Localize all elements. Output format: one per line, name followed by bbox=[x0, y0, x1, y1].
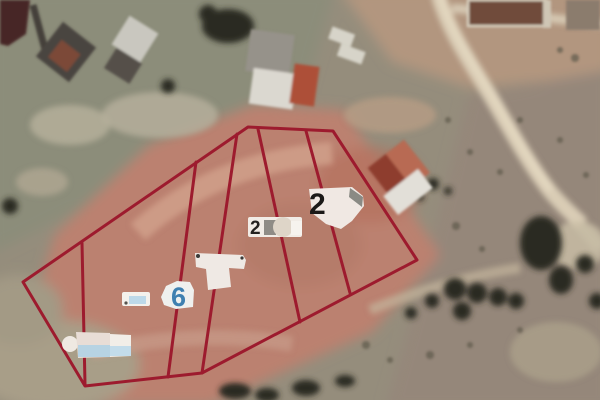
building-top-right-gray bbox=[566, 0, 600, 30]
light-clearing-bottom-right bbox=[510, 322, 600, 382]
rocky-light-patch2 bbox=[16, 168, 68, 196]
rocky-light-band bbox=[102, 92, 218, 138]
light-dirt-top-of-parcels bbox=[344, 97, 436, 133]
satellite-map-view[interactable]: 6 2 2 bbox=[0, 0, 600, 400]
tree-large bbox=[520, 216, 562, 270]
parcel-number-top: 2 bbox=[309, 188, 326, 221]
building-top-right-brown bbox=[468, 0, 600, 30]
parcel-number-middle: 2 bbox=[250, 218, 261, 239]
map-canvas[interactable]: 6 2 2 bbox=[0, 0, 600, 400]
parcel-number-six: 6 bbox=[171, 282, 186, 312]
building-white-barn bbox=[249, 68, 298, 110]
parcel-label-blue-bar[interactable] bbox=[122, 292, 150, 306]
rocky-light-patch bbox=[30, 105, 110, 145]
building-gray-barn bbox=[245, 29, 294, 77]
parcel-label-middle-two[interactable]: 2 bbox=[248, 217, 302, 239]
